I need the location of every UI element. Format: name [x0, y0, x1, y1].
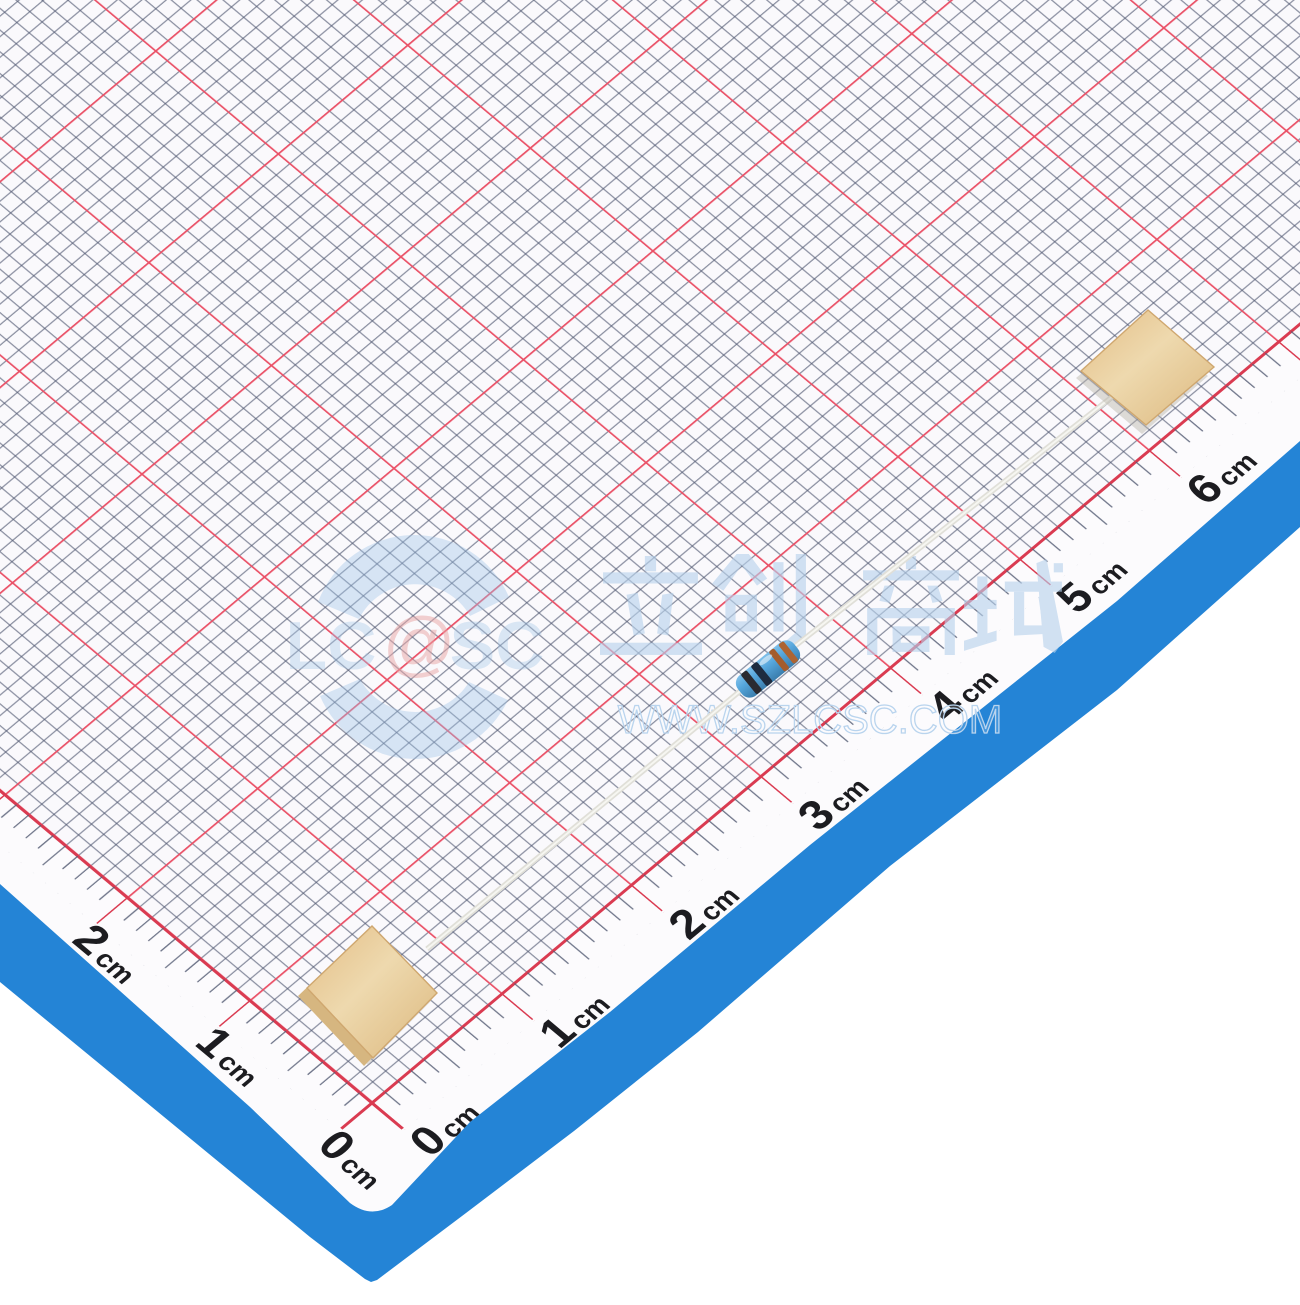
svg-text:SC: SC: [450, 608, 544, 684]
svg-text:LC: LC: [286, 608, 377, 684]
svg-text:WWW.SZLCSC.COM: WWW.SZLCSC.COM: [618, 698, 1002, 742]
svg-text:@: @: [382, 604, 455, 684]
